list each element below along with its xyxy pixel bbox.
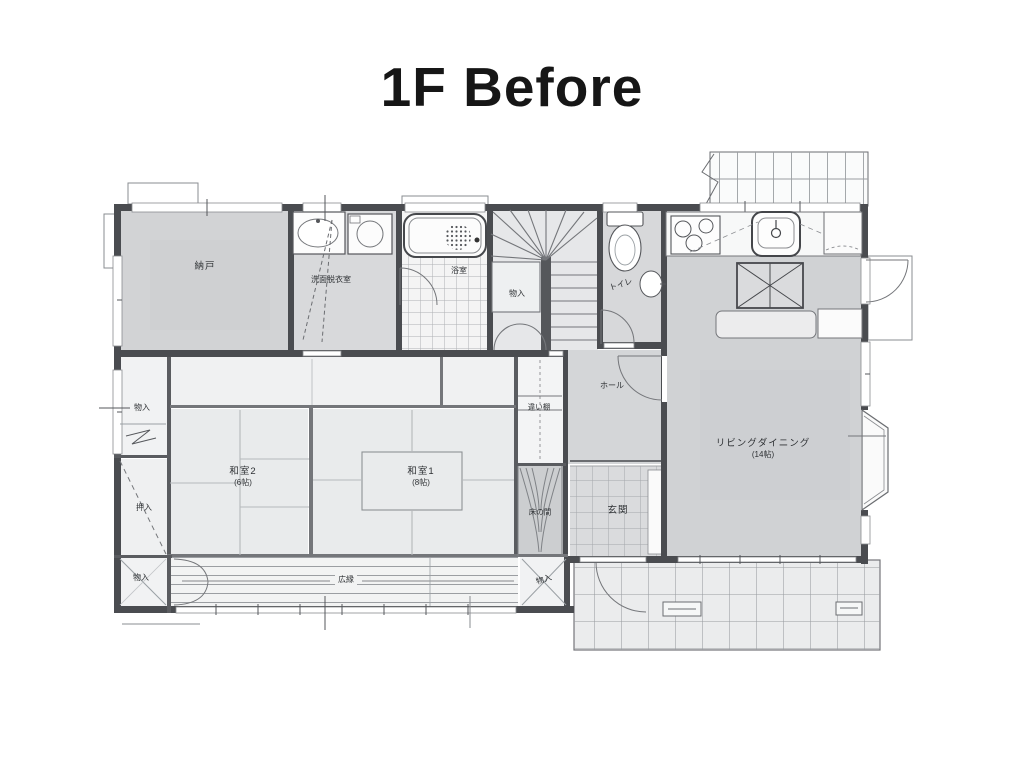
room-label-senmen: 洗面脱衣室 [311,275,351,285]
room-label-living-dining-name: リビングダイニング [716,438,811,449]
room-label-living-dining: リビングダイニング (14帖) [716,438,811,460]
room-label-washitsu2-name: 和室2 [229,466,256,477]
room-label-monoire-left-bottom: 物入 [133,573,149,583]
room-label-tokonoma: 床の間 [529,507,552,516]
wood-deck [702,152,868,206]
room-label-washitsu1: 和室1 (8帖) [407,466,434,488]
room-label-monoire-stairs: 物入 [509,289,525,299]
terrace [574,560,880,650]
room-label-washitsu1-name: 和室1 [407,466,434,477]
room-label-hiroen: 広縁 [335,575,357,585]
room-label-oshiire: 押入 [136,503,152,513]
room-label-monoire-left-top: 物入 [134,403,150,413]
room-label-washitsu1-size: (8帖) [407,478,434,488]
room-label-yokushitsu: 浴室 [451,266,467,276]
room-label-washitsu2: 和室2 (6帖) [229,466,256,488]
floor-plan-page: 1F Before [0,0,1024,768]
room-label-nando: 納戸 [194,261,215,273]
room-label-chigaidana: 違い棚 [528,402,551,411]
room-label-living-dining-size: (14帖) [716,450,811,460]
room-label-washitsu2-size: (6帖) [229,478,256,488]
room-label-genkan: 玄関 [607,505,628,517]
room-label-hall: ホール [600,381,624,391]
floor-plan-drawing [0,0,1024,768]
